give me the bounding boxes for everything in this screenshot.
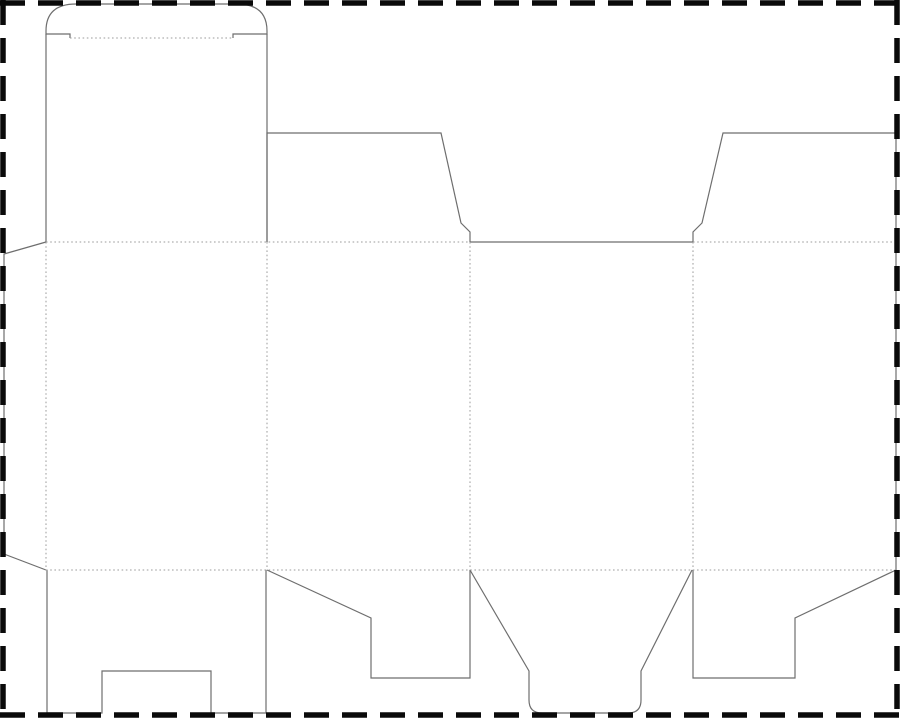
dieline-figure: [0, 0, 900, 718]
glue-flap: [4, 242, 46, 570]
dieline-svg: [0, 0, 900, 718]
panel-4-bottom-flap: [693, 570, 896, 678]
panel-2-bottom-flap: [267, 570, 470, 678]
panel-2-top-flap: [267, 133, 470, 242]
panel-4-top-flap: [693, 133, 896, 242]
panel-3-bottom-flap: [470, 570, 692, 713]
top-tuck-lid: [46, 4, 267, 38]
panel-1-bottom-flap: [47, 570, 266, 713]
